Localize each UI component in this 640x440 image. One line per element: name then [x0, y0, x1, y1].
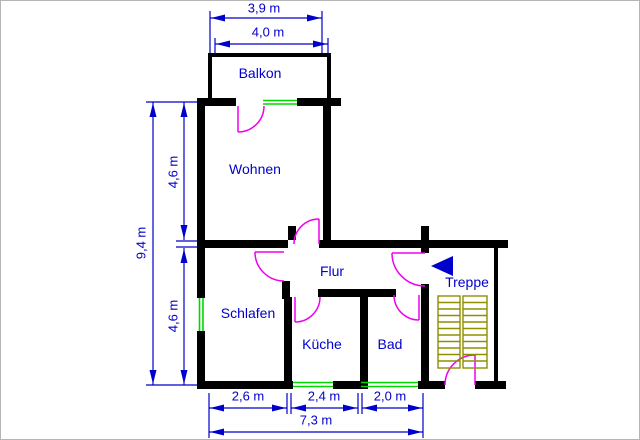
dim-label-total-height: 9,4 m	[134, 227, 149, 260]
stair-treads-left	[438, 303, 460, 362]
living-door	[294, 219, 319, 244]
room-label-bath: Bad	[378, 336, 403, 352]
kitchen-door	[295, 297, 320, 322]
dim-label-bath-width: 2,0 m	[374, 389, 407, 404]
stair-treads-right	[463, 303, 487, 362]
bedroom-window	[200, 298, 204, 331]
kitchen-window	[293, 383, 333, 387]
outer-wall-top-right	[297, 98, 341, 106]
dim-label-bedroom-width: 2,6 m	[232, 389, 265, 404]
apartment-entrance-door	[392, 253, 425, 286]
arrow	[211, 15, 225, 22]
arrow	[272, 405, 286, 412]
arrow	[408, 429, 422, 436]
balcony-wall-top	[208, 53, 331, 57]
arrow	[210, 429, 224, 436]
stairwell-wall-top	[429, 240, 508, 248]
arrow	[181, 249, 188, 263]
entrance-wall-upper	[421, 226, 429, 253]
dim-label-balcony-width: 3,9 m	[248, 1, 281, 16]
dimension-arrows	[150, 15, 454, 436]
room-label-living: Wohnen	[229, 161, 281, 177]
dim-label-living-height: 4,6 m	[166, 156, 181, 189]
bedroom-kitchen-wall	[284, 297, 292, 389]
living-right-wall	[323, 98, 331, 248]
balcony-door	[238, 106, 264, 132]
living-window	[263, 101, 297, 105]
arrow	[210, 405, 224, 412]
bedroom-hall-wall	[282, 281, 290, 299]
arrow	[363, 405, 377, 412]
arrow	[292, 405, 306, 412]
stairs-direction-arrow	[431, 256, 453, 276]
dim-label-bedroom-height: 4,6 m	[166, 300, 181, 333]
floor-plan: Balkon Wohnen Flur Schlafen Küche Bad Tr…	[0, 0, 640, 440]
dim-label-kitchen-width: 2,4 m	[308, 389, 341, 404]
arrow	[408, 405, 422, 412]
outer-wall-left-lower	[197, 331, 205, 389]
stair-flight-left	[438, 296, 460, 368]
dim-total-height-line	[146, 102, 197, 385]
dim-label-living-width: 4,0 m	[252, 25, 285, 40]
floor-plan-drawing	[1, 1, 640, 440]
room-label-balcony: Balkon	[239, 65, 282, 81]
entrance-wall-lower	[421, 284, 429, 389]
middle-wall-left	[197, 240, 288, 248]
arrow	[313, 41, 327, 48]
room-label-bedroom: Schlafen	[221, 305, 275, 321]
balcony-wall-left	[208, 53, 212, 98]
stairwell-wall-right	[494, 248, 498, 381]
arrow	[181, 370, 188, 384]
stairwell-wall-bottom-left	[429, 381, 445, 389]
kitchen-bath-wall	[360, 297, 368, 389]
bath-window	[361, 383, 418, 387]
room-label-stairs: Treppe	[445, 274, 489, 290]
stairwell-wall-bottom-right	[475, 381, 506, 389]
arrow	[216, 41, 230, 48]
arrow	[181, 225, 188, 239]
walls	[197, 53, 508, 389]
arrow	[343, 405, 357, 412]
arrow	[150, 103, 157, 117]
arrow	[150, 370, 157, 384]
room-label-kitchen: Küche	[302, 336, 342, 352]
dim-middle-ticks	[176, 241, 197, 247]
middle-wall-right	[319, 240, 429, 248]
outer-wall-top-left	[197, 98, 236, 106]
room-label-hall: Flur	[320, 263, 344, 279]
arrow	[307, 15, 321, 22]
arrow	[181, 103, 188, 117]
dim-living-width-line	[215, 38, 328, 53]
outer-wall-left-upper	[197, 98, 205, 298]
bath-door	[394, 295, 419, 320]
bedroom-door	[255, 252, 284, 281]
staircase	[438, 296, 487, 368]
balcony-wall-right	[327, 53, 331, 98]
hall-kitchen-bath-wall	[318, 289, 396, 297]
dim-label-total-width: 7,3 m	[300, 413, 333, 428]
